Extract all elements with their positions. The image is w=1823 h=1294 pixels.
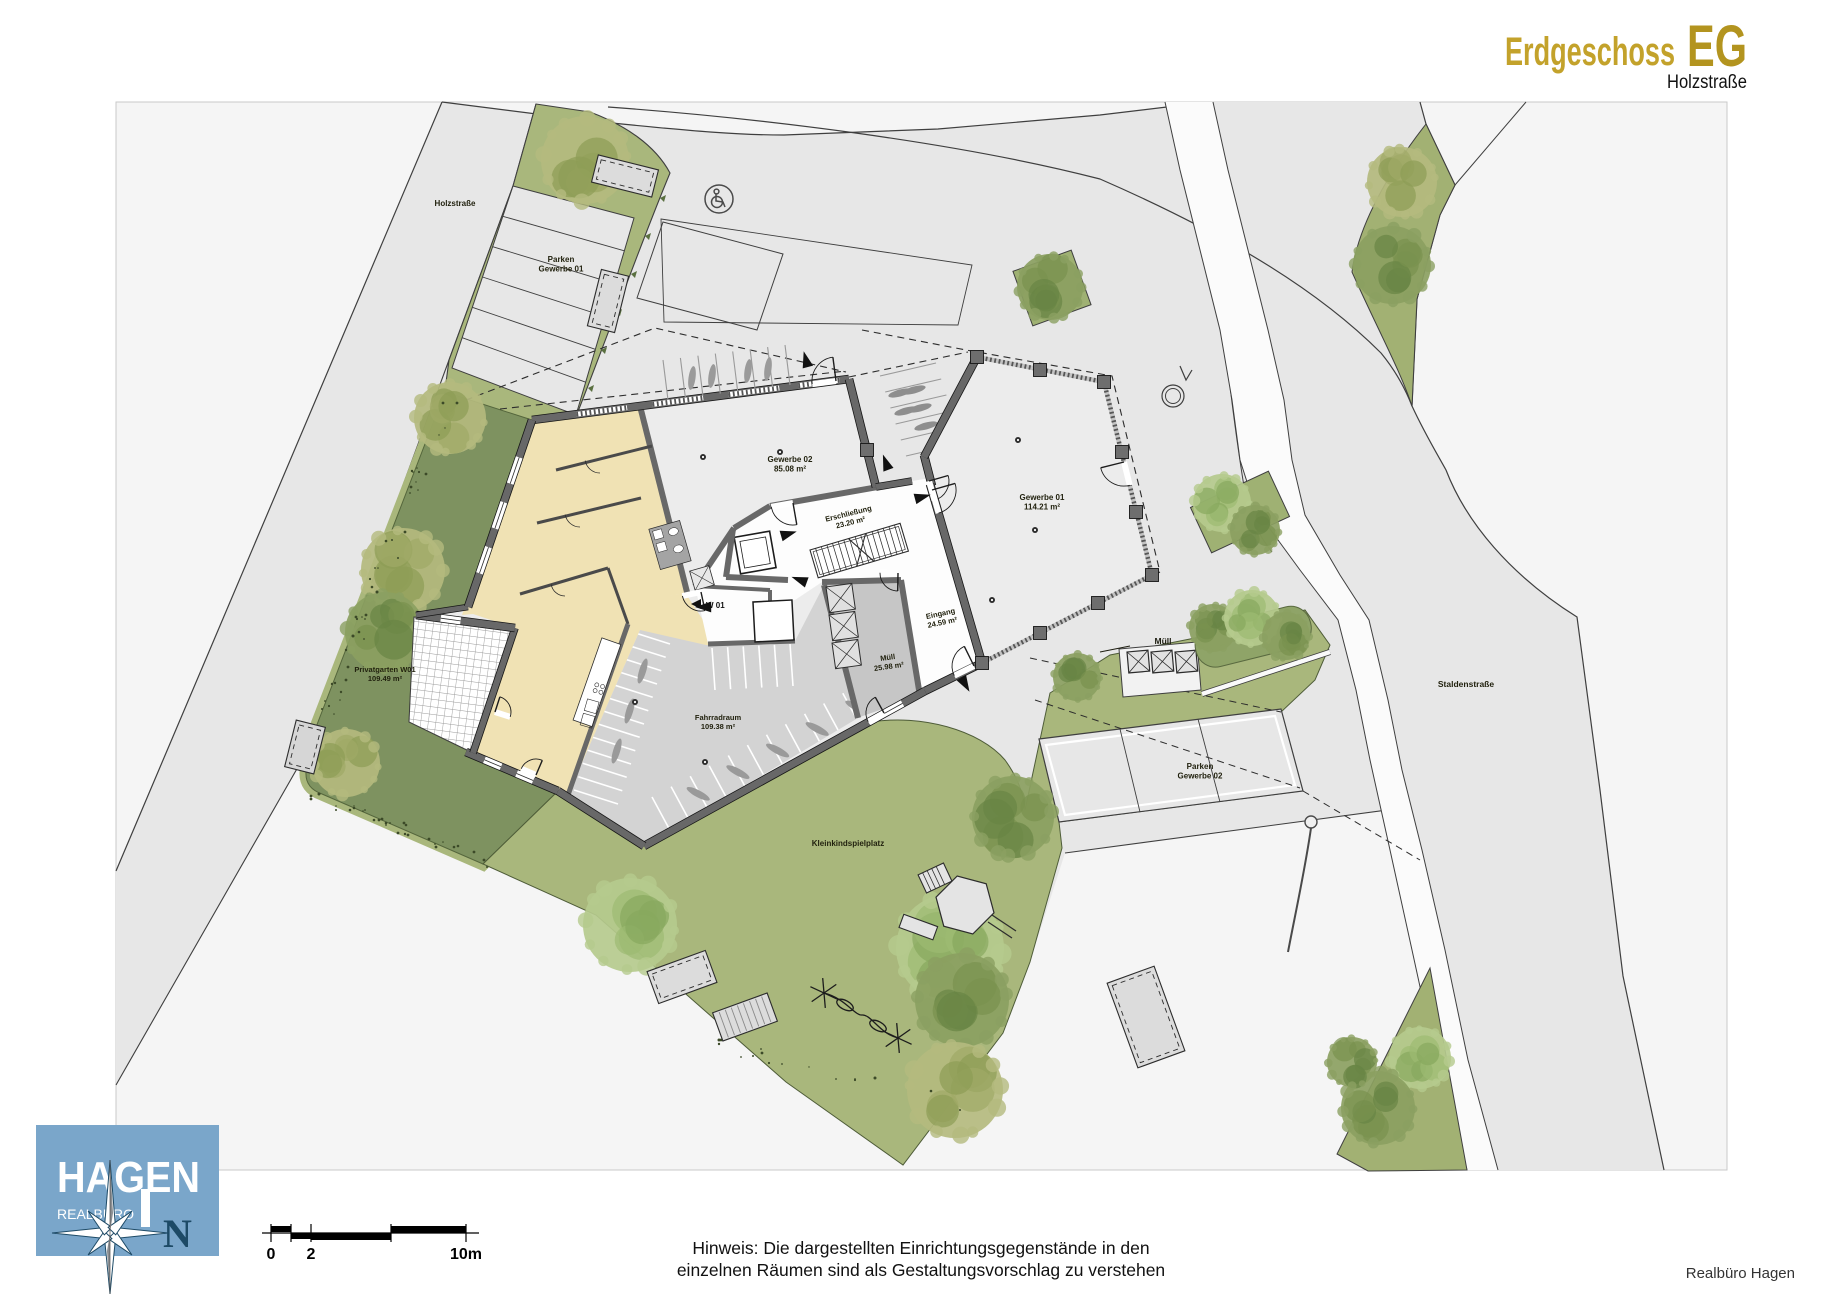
svg-text:109.38 m²: 109.38 m²	[701, 722, 736, 731]
svg-text:Holzstraße: Holzstraße	[435, 199, 476, 208]
svg-text:2: 2	[307, 1246, 316, 1263]
svg-text:Parken: Parken	[548, 255, 575, 264]
svg-text:Gewerbe 01: Gewerbe 01	[539, 265, 584, 274]
svg-text:Gewerbe 02: Gewerbe 02	[1178, 772, 1223, 781]
svg-text:Gewerbe 01: Gewerbe 01	[1020, 493, 1065, 502]
svg-text:einzelnen Räumen sind als Gest: einzelnen Räumen sind als Gestaltungsvor…	[677, 1260, 1165, 1280]
svg-text:85.08 m²: 85.08 m²	[774, 465, 806, 474]
svg-text:109.49 m²: 109.49 m²	[368, 674, 403, 683]
svg-text:Parken: Parken	[1187, 762, 1214, 771]
svg-text:Hinweis: Die dargestellten Ein: Hinweis: Die dargestellten Einrichtungsg…	[692, 1238, 1149, 1258]
svg-text:Staldenstraße: Staldenstraße	[1438, 679, 1494, 689]
svg-text:EG: EG	[1687, 14, 1747, 79]
svg-text:W 01: W 01	[706, 601, 725, 610]
svg-text:N: N	[163, 1211, 192, 1256]
svg-text:HAGEN: HAGEN	[57, 1153, 200, 1202]
svg-text:Fahrradraum: Fahrradraum	[695, 713, 742, 722]
svg-text:0: 0	[267, 1246, 276, 1263]
svg-text:Realbüro Hagen: Realbüro Hagen	[1686, 1265, 1795, 1282]
svg-text:Erdgeschoss: Erdgeschoss	[1505, 30, 1675, 74]
svg-text:Müll: Müll	[1155, 636, 1172, 646]
svg-text:Holzstraße: Holzstraße	[1667, 72, 1747, 93]
svg-text:10m: 10m	[450, 1246, 482, 1263]
svg-text:Gewerbe 02: Gewerbe 02	[768, 455, 813, 464]
svg-text:114.21 m²: 114.21 m²	[1024, 503, 1060, 512]
svg-text:Kleinkindspielplatz: Kleinkindspielplatz	[812, 839, 884, 848]
svg-text:Privatgarten W01: Privatgarten W01	[354, 665, 415, 674]
